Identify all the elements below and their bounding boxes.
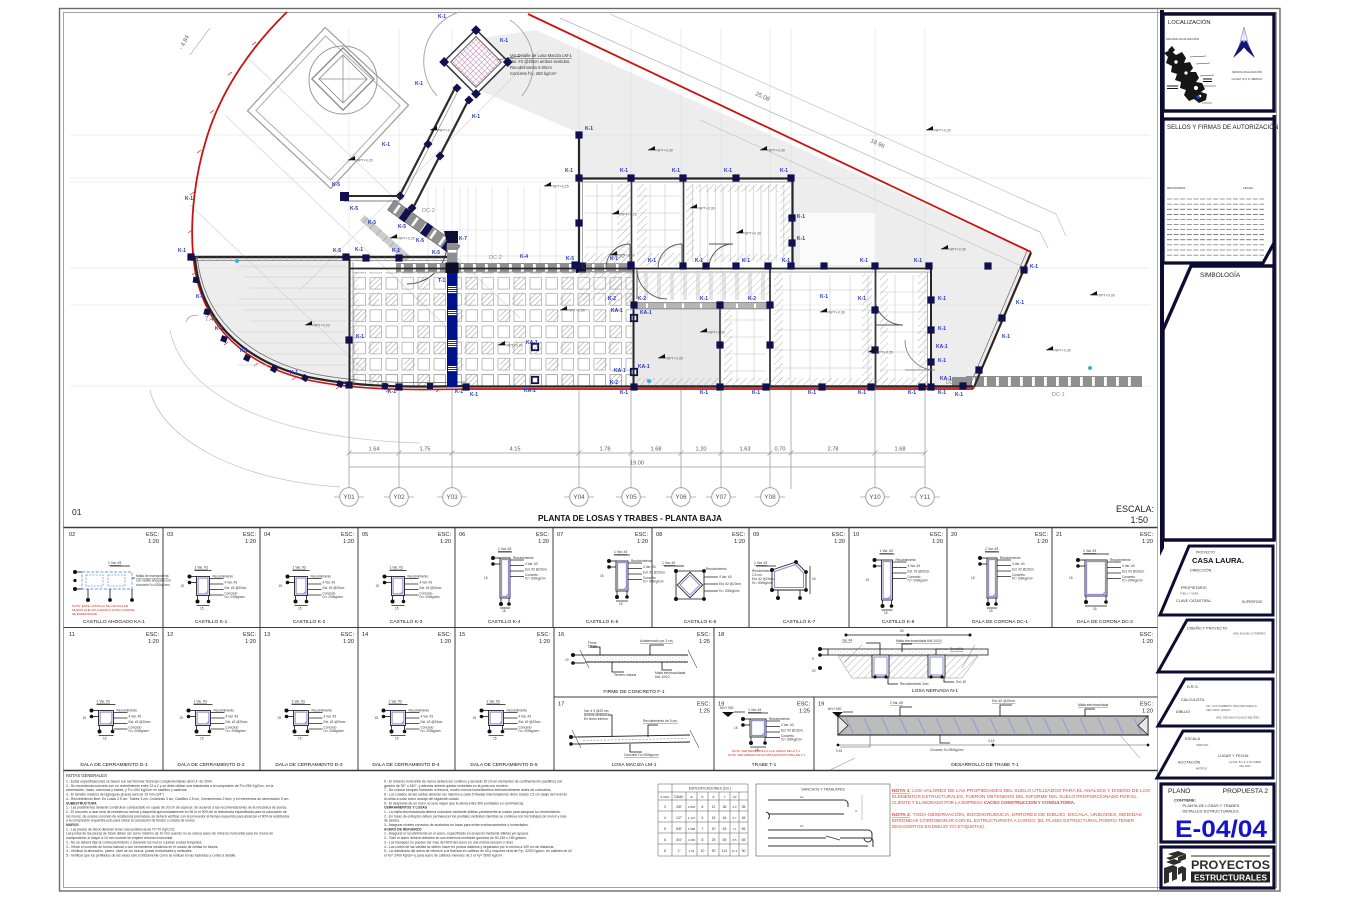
svg-text:Recubrimiento: Recubrimiento xyxy=(507,709,528,713)
svg-text:ARQ. GEOVANA VELASCO BELTRÁN: ARQ. GEOVANA VELASCO BELTRÁN xyxy=(1216,717,1260,720)
svg-text:15: 15 xyxy=(200,607,204,611)
svg-text:Est. #2 @20cm.: Est. #2 @20cm. xyxy=(1122,570,1145,574)
svg-text:CASTILLO K-6: CASTILLO K-6 xyxy=(684,619,717,625)
svg-text:NPT+0.30: NPT+0.30 xyxy=(619,254,635,258)
svg-text:1:20: 1:20 xyxy=(1142,539,1153,545)
svg-text:1 Var. #3: 1 Var. #3 xyxy=(498,547,511,551)
svg-text:09: 09 xyxy=(753,532,759,538)
svg-text:K-1: K-1 xyxy=(955,392,963,398)
svg-text:4 Var. #3: 4 Var. #3 xyxy=(643,565,656,569)
svg-text:K-1: K-1 xyxy=(392,248,400,254)
svg-text:1.- Asegurar el recubrimie: 1.- Asegurar el recubrimiento en el acer… xyxy=(384,832,529,836)
svg-text:10 cm.: 10 cm. xyxy=(588,645,598,649)
svg-text:· PLANTA DE LOSAS Y TRABES.: · PLANTA DE LOSAS Y TRABES. xyxy=(1180,803,1240,808)
svg-text:NPT+0.30: NPT+0.30 xyxy=(709,331,725,335)
svg-text:K-1: K-1 xyxy=(388,389,396,395)
svg-text:Y06: Y06 xyxy=(675,494,687,501)
svg-text:K-1: K-1 xyxy=(938,390,946,396)
svg-text:1.- Estas especificaciones se: 1.- Estas especificaciones se basan con … xyxy=(66,780,213,784)
svg-text:K-2: K-2 xyxy=(638,296,646,302)
svg-text:7.41: 7.41 xyxy=(205,317,217,323)
svg-text:K-1: K-1 xyxy=(797,214,805,220)
svg-text:K-1: K-1 xyxy=(290,370,298,376)
svg-text:THELY Y SURA.: THELY Y SURA. xyxy=(1180,592,1199,596)
svg-text:f'c= 200kg/cm²: f'c= 200kg/cm² xyxy=(324,729,345,733)
svg-text:NPT+0.25: NPT+0.25 xyxy=(439,129,455,133)
svg-text:NPT+0.25: NPT+0.25 xyxy=(553,185,569,189)
svg-text:4 Var. #3: 4 Var. #3 xyxy=(421,715,434,719)
svg-text:METROS: METROS xyxy=(1196,767,1207,771)
svg-text:K-1: K-1 xyxy=(620,168,628,174)
svg-text:15: 15 xyxy=(298,607,302,611)
svg-text:DALA DE CERRAMIENTO D-2: DALA DE CERRAMIENTO D-2 xyxy=(177,762,245,768)
svg-text:GANCHOS Y TRASLAPES: GANCHOS Y TRASLAPES xyxy=(801,788,845,792)
svg-text:a la compresión requerida esto: a la compresión requerida esto para inic… xyxy=(66,819,196,823)
svg-text:DISEÑO Y PROYECTO: DISEÑO Y PROYECTO xyxy=(1187,626,1227,631)
svg-text:4 Var. #3: 4 Var. #3 xyxy=(781,723,794,727)
svg-text:SUPERFICIE: SUPERFICIE xyxy=(1242,600,1263,604)
svg-text:DALA DE CERRAMIENTO D-3: DALA DE CERRAMIENTO D-3 xyxy=(275,762,343,768)
svg-text:4: 4 xyxy=(664,816,666,820)
svg-text:15: 15 xyxy=(376,584,380,588)
svg-text:13: 13 xyxy=(264,632,270,638)
svg-text:Est. #2: Est. #2 xyxy=(956,680,966,684)
svg-text:Y07: Y07 xyxy=(715,494,727,501)
svg-text:ESC:: ESC: xyxy=(697,632,711,638)
svg-text:K-1: K-1 xyxy=(742,258,750,264)
svg-text:Var. #4: Var. #4 xyxy=(842,639,852,643)
svg-text:K-5: K-5 xyxy=(398,224,406,230)
svg-text:ESC:: ESC: xyxy=(536,532,550,538)
svg-text:12: 12 xyxy=(712,805,716,809)
svg-text:Est. #2 @20cm.: Est. #2 @20cm. xyxy=(226,720,249,724)
svg-text:DIRECCIÓN: DIRECCIÓN xyxy=(1190,568,1212,573)
svg-text:Recubrimiento: Recubrimiento xyxy=(117,709,138,713)
svg-text:02: 02 xyxy=(69,532,75,538)
svg-text:PLANTA DE LOSAS Y TRABES - PL: PLANTA DE LOSAS Y TRABES - PLANTA BAJA xyxy=(538,514,722,523)
svg-text:K-5: K-5 xyxy=(368,220,376,226)
svg-text:46: 46 xyxy=(723,816,727,820)
svg-text:DALA DE CERRAMIENTO D-4: DALA DE CERRAMIENTO D-4 xyxy=(372,762,440,768)
svg-text:21: 21 xyxy=(1056,532,1062,538)
svg-text:NPT+0.30: NPT+0.30 xyxy=(745,232,761,236)
svg-text:01: 01 xyxy=(72,507,82,517)
svg-text:1 Var. #3: 1 Var. #3 xyxy=(97,700,110,704)
svg-text:DC-1: DC-1 xyxy=(1052,392,1065,398)
svg-text:Est. #2 @15cm.: Est. #2 @15cm. xyxy=(992,699,1016,703)
svg-text:4 Var. #3: 4 Var. #3 xyxy=(1122,564,1135,568)
svg-text:CASTILLO K-2: CASTILLO K-2 xyxy=(293,619,326,625)
svg-text:K-2: K-2 xyxy=(608,296,616,302)
svg-text:Concreto f'c=250kg/cm²: Concreto f'c=250kg/cm² xyxy=(930,748,964,752)
svg-text:4.15: 4.15 xyxy=(988,739,995,743)
svg-text:DALA DE CERRAMIENTO D-1: DALA DE CERRAMIENTO D-1 xyxy=(80,762,148,768)
svg-text:K-1: K-1 xyxy=(752,390,760,396)
svg-text:d: d xyxy=(713,795,715,799)
svg-text:11: 11 xyxy=(69,632,75,638)
svg-text:17: 17 xyxy=(558,702,564,708)
svg-text:K-5: K-5 xyxy=(416,238,424,244)
svg-text:65: 65 xyxy=(742,838,746,842)
svg-text:SELLOS Y FIRMAS DE AUTORIZACIÓ: SELLOS Y FIRMAS DE AUTORIZACIÓN xyxy=(1167,124,1278,131)
svg-text:5.7: 5.7 xyxy=(732,816,736,820)
svg-text:4 Var. #3: 4 Var. #3 xyxy=(323,581,336,585)
svg-text:1:20: 1:20 xyxy=(932,539,943,545)
svg-text:ESPECIFICACIONES (Cm.): ESPECIFICACIONES (Cm.) xyxy=(689,787,732,791)
svg-text:20: 20 xyxy=(712,827,716,831)
svg-text:ESC:: ESC: xyxy=(1035,532,1049,538)
svg-text:1 Var. #3: 1 Var. #3 xyxy=(194,700,207,704)
svg-text:15: 15 xyxy=(712,816,716,820)
svg-text:15: 15 xyxy=(278,716,282,720)
svg-text:19.00: 19.00 xyxy=(630,461,644,467)
svg-text:Est. #2 @20cm.: Est. #2 @20cm. xyxy=(324,720,347,724)
svg-text:K-7: K-7 xyxy=(459,236,467,242)
svg-text:K-1: K-1 xyxy=(808,390,816,396)
svg-text:DC-2: DC-2 xyxy=(489,255,502,261)
svg-text:19: 19 xyxy=(818,702,824,708)
svg-text:K-1: K-1 xyxy=(240,348,248,354)
svg-text:10: 10 xyxy=(701,849,705,853)
svg-text:K-1: K-1 xyxy=(620,390,628,396)
svg-text:1.68: 1.68 xyxy=(651,447,662,453)
svg-text:14: 14 xyxy=(362,632,368,638)
svg-text:f'c= 200kg/cm²: f'c= 200kg/cm² xyxy=(129,729,150,733)
svg-text:NIV+.500: NIV+.500 xyxy=(720,706,734,710)
svg-text:90: 90 xyxy=(742,849,746,853)
svg-text:15: 15 xyxy=(884,611,888,615)
svg-text:NPT+0.30: NPT+0.30 xyxy=(657,149,673,153)
svg-text:1.68: 1.68 xyxy=(895,447,906,453)
svg-text:K-1: K-1 xyxy=(858,390,866,396)
svg-text:1:20: 1:20 xyxy=(834,539,845,545)
svg-text:los muros; de usarse concreto: los muros; de usarse concreto de resiste… xyxy=(66,814,289,818)
svg-text:1:20: 1:20 xyxy=(637,539,648,545)
svg-text:10: 10 xyxy=(565,658,569,662)
svg-text:5.- Verificar que los perfilad: 5.- Verificar que los perfilados de las … xyxy=(66,854,236,858)
svg-text:0.953: 0.953 xyxy=(688,805,696,809)
svg-text:15: 15 xyxy=(375,716,379,720)
svg-text:K-1: K-1 xyxy=(356,334,364,340)
svg-text:ESC:: ESC: xyxy=(146,532,160,538)
svg-text:f'c= 200kg/cm²: f'c= 200kg/cm² xyxy=(1122,579,1143,583)
svg-text:55: 55 xyxy=(742,827,746,831)
svg-text:KA-1: KA-1 xyxy=(611,308,623,314)
svg-text:15: 15 xyxy=(395,737,399,741)
svg-text:NPT+0.30: NPT+0.30 xyxy=(699,207,715,211)
svg-text:4 Var. #3: 4 Var. #3 xyxy=(420,581,433,585)
svg-text:Recubrimiento: Recubrimiento xyxy=(1000,556,1021,560)
svg-text:ERRÓNEAS CORROBORAR CON EL EST: ERRÓNEAS CORROBORAR CON EL ESTRUCTURISTA… xyxy=(892,818,1134,823)
svg-text:NPT+0.30: NPT+0.30 xyxy=(507,344,523,348)
svg-text:1.63: 1.63 xyxy=(740,447,751,453)
svg-text:ESTRUCTURALES: ESTRUCTURALES xyxy=(1194,874,1268,883)
svg-text:15: 15 xyxy=(473,716,477,720)
svg-text:1:50: 1:50 xyxy=(1130,515,1148,525)
svg-text:Recubrimiento: Recubrimiento xyxy=(513,556,534,560)
svg-text:2.54: 2.54 xyxy=(689,849,695,853)
svg-text:Est. #2 @20cm.: Est. #2 @20cm. xyxy=(519,720,542,724)
svg-text:1:20: 1:20 xyxy=(538,539,549,545)
svg-text:DALA DE CORONA DC-2: DALA DE CORONA DC-2 xyxy=(1077,619,1133,625)
svg-text:LA PAZ, B.C.S. A OCTUBRE: LA PAZ, B.C.S. A OCTUBRE xyxy=(1229,761,1261,764)
svg-text:1.64: 1.64 xyxy=(369,447,380,453)
svg-text:f'c= 200kg/cm²: f'c= 200kg/cm² xyxy=(420,595,441,599)
svg-text:12: 12 xyxy=(167,632,173,638)
svg-text:K-1: K-1 xyxy=(938,296,946,302)
svg-text:f'c= 200kg/cm²: f'c= 200kg/cm² xyxy=(908,579,929,583)
svg-text:Recubrimiento: Recubrimiento xyxy=(896,558,917,562)
svg-text:K-1: K-1 xyxy=(438,14,446,20)
svg-text:f'c= 200kg/cm²: f'c= 200kg/cm² xyxy=(226,729,247,733)
svg-text:Est. #2 @20cm.: Est. #2 @20cm. xyxy=(719,582,742,586)
svg-text:15: 15 xyxy=(279,584,283,588)
svg-text:15: 15 xyxy=(459,632,465,638)
svg-text:T-1: T-1 xyxy=(438,278,445,284)
svg-text:CASTILLO K-7: CASTILLO K-7 xyxy=(783,619,816,625)
svg-text:3/4": 3/4" xyxy=(676,838,683,842)
svg-text:K-1: K-1 xyxy=(700,390,708,396)
svg-text:DESARROLLO DE TRABE T-1: DESARROLLO DE TRABE T-1 xyxy=(951,762,1019,768)
svg-text:45: 45 xyxy=(742,816,746,820)
svg-text:DEL 2023: DEL 2023 xyxy=(1239,765,1251,768)
svg-text:1 Var. #3: 1 Var. #3 xyxy=(880,549,893,553)
svg-text:# VAR.: # VAR. xyxy=(660,795,669,799)
svg-text:Ld: Ld xyxy=(800,824,804,828)
svg-text:Var. #3 @20cm ambos sentidos.: Var. #3 @20cm ambos sentidos. xyxy=(510,59,570,64)
svg-text:ESC:: ESC: xyxy=(146,632,160,638)
svg-text:1.588: 1.588 xyxy=(688,827,696,831)
svg-text:ESC:: ESC: xyxy=(697,702,711,708)
svg-text:Recubrimiento: Recubrimiento xyxy=(214,709,235,713)
svg-text:f'c= 200kg/cm²: f'c= 200kg/cm² xyxy=(225,595,246,599)
svg-text:1.78: 1.78 xyxy=(600,447,611,453)
svg-text:35: 35 xyxy=(742,805,746,809)
svg-text:K-1: K-1 xyxy=(565,168,573,174)
svg-text:3.- Los traslapes no puede: 3.- Los traslapes no pueden ser mas del … xyxy=(384,840,514,844)
svg-text:Y04: Y04 xyxy=(573,494,585,501)
svg-text:2.78: 2.78 xyxy=(828,447,839,453)
svg-text:LOSA MACIZA LM-1: LOSA MACIZA LM-1 xyxy=(612,762,657,768)
svg-text:1.127: 1.127 xyxy=(688,816,696,820)
svg-text:K-5: K-5 xyxy=(566,256,574,262)
svg-text:CALCULISTA: CALCULISTA xyxy=(1181,698,1205,702)
svg-text:ING. LUIS HUMBERTO SÁNCHEZ MUR: ING. LUIS HUMBERTO SÁNCHEZ MURILLO xyxy=(1206,705,1257,708)
svg-text:4.- Verificar la alineación, p: 4.- Verificar la alineación, plomo, nive… xyxy=(66,849,192,853)
svg-text:16: 16 xyxy=(558,632,564,638)
svg-text:5: 5 xyxy=(664,827,666,831)
svg-text:4 Var. #3: 4 Var. #3 xyxy=(525,562,538,566)
svg-text:15: 15 xyxy=(989,609,993,613)
svg-text:PROYECTO: PROYECTO xyxy=(1196,551,1215,555)
svg-text:1:20: 1:20 xyxy=(1037,539,1048,545)
svg-text:CASTILLO K-4: CASTILLO K-4 xyxy=(488,619,521,625)
svg-text:1:20: 1:20 xyxy=(245,639,256,645)
svg-text:1:20: 1:20 xyxy=(1142,709,1153,715)
svg-text:2 Var. #5: 2 Var. #5 xyxy=(890,701,903,705)
svg-text:DESACIERTOS EN DIBUJO Y/O ETIQ: DESACIERTOS EN DIBUJO Y/O ETIQUETAS). xyxy=(892,824,985,829)
svg-text:Est. #2 @20cm.: Est. #2 @20cm. xyxy=(781,729,804,733)
svg-text:10: 10 xyxy=(853,532,859,538)
svg-text:1/2": 1/2" xyxy=(676,816,683,820)
svg-text:Acabermado por 3 cm.: Acabermado por 3 cm. xyxy=(640,639,673,643)
svg-text:Recubrimiento de 5 cm.: Recubrimiento de 5 cm. xyxy=(643,719,678,723)
svg-text:06: 06 xyxy=(459,532,465,538)
svg-text:REVISIONES: REVISIONES xyxy=(1167,186,1185,190)
svg-text:4 Var. #3: 4 Var. #3 xyxy=(519,715,532,719)
svg-text:2.- No se deberá fijar la cont: 2.- No se deberá fijar la contra perfora… xyxy=(66,840,202,844)
svg-text:K-1: K-1 xyxy=(500,38,508,44)
svg-text:4 Var. #3: 4 Var. #3 xyxy=(324,715,337,719)
svg-text:Bovedilla: Bovedilla xyxy=(950,647,964,651)
svg-text:NPT+0.20: NPT+0.20 xyxy=(935,129,951,133)
svg-text:Recubrimiento: Recubrimiento xyxy=(631,559,652,563)
svg-text:Recubrimiento: Recubrimiento xyxy=(409,709,430,713)
svg-text:SE ESPECIFIQUE: SE ESPECIFIQUE xyxy=(72,612,97,616)
svg-text:K-1: K-1 xyxy=(780,168,788,174)
svg-text:6: 6 xyxy=(702,816,704,820)
svg-text:MACROLOCALIZACIÓN: MACROLOCALIZACIÓN xyxy=(1166,36,1199,41)
svg-text:NPT+0.00: NPT+0.00 xyxy=(1099,294,1115,298)
svg-text:Recubrimiento: Recubrimiento xyxy=(1110,558,1131,562)
svg-text:Y11: Y11 xyxy=(920,494,931,501)
svg-text:3.- Asegurar niveles corre: 3.- Asegurar niveles correctos de acabad… xyxy=(384,823,529,827)
svg-text:concreto f'c=200kg/cm²: concreto f'c=200kg/cm² xyxy=(136,583,171,587)
svg-text:04: 04 xyxy=(264,532,270,538)
svg-text:1.20: 1.20 xyxy=(696,447,707,453)
svg-text:4 Var. #3: 4 Var. #3 xyxy=(719,575,732,579)
svg-text:4 Var. #3: 4 Var. #3 xyxy=(129,715,142,719)
svg-text:NPT+0.30: NPT+0.30 xyxy=(1055,349,1071,353)
svg-text:K-1: K-1 xyxy=(938,358,946,364)
svg-text:ESC:: ESC: xyxy=(243,532,257,538)
svg-text:ESC:: ESC: xyxy=(797,702,811,708)
svg-text:Ld: Ld xyxy=(733,795,737,799)
svg-text:1:20: 1:20 xyxy=(148,539,159,545)
svg-text:CONTIENE:: CONTIENE: xyxy=(1174,798,1196,803)
svg-text:K-1: K-1 xyxy=(938,326,946,332)
svg-text:PLANO: PLANO xyxy=(1168,788,1190,795)
svg-text:Concreto f'c=250kg/cm²: Concreto f'c=250kg/cm² xyxy=(624,753,660,757)
svg-text:07: 07 xyxy=(557,532,563,538)
svg-text:ELEMENTOS ESTRUCTURALES, FUERO: ELEMENTOS ESTRUCTURALES, FUERON OBTENIDO… xyxy=(892,794,1138,799)
svg-text:1:20: 1:20 xyxy=(734,539,745,545)
svg-text:63: 63 xyxy=(723,827,727,831)
svg-text:K-1: K-1 xyxy=(820,294,828,300)
svg-text:PROPIETARIO: PROPIETARIO xyxy=(1181,586,1207,590)
svg-text:4.3: 4.3 xyxy=(732,805,736,809)
svg-text:E-04/04: E-04/04 xyxy=(1175,816,1268,843)
svg-text:1:25: 1:25 xyxy=(699,639,710,645)
svg-text:K-1: K-1 xyxy=(1016,300,1024,306)
svg-text:NPT+0.20: NPT+0.20 xyxy=(357,159,373,163)
svg-text:K-1: K-1 xyxy=(185,196,193,202)
svg-text:Est. #2 @20cm.: Est. #2 @20cm. xyxy=(1012,568,1035,572)
svg-text:CASTILLO K-8: CASTILLO K-8 xyxy=(882,619,915,625)
svg-text:CASTILLO K-3: CASTILLO K-3 xyxy=(390,619,423,625)
svg-text:NPT+0.30: NPT+0.30 xyxy=(569,309,585,313)
svg-text:K-4: K-4 xyxy=(520,254,528,260)
svg-text:NPT+0.25: NPT+0.25 xyxy=(399,237,415,241)
svg-text:15: 15 xyxy=(83,716,87,720)
svg-text:1.905: 1.905 xyxy=(688,838,696,842)
svg-text:1 Var. #3: 1 Var. #3 xyxy=(487,700,500,704)
svg-text:11.3: 11.3 xyxy=(732,849,738,853)
svg-text:K-5: K-5 xyxy=(333,248,341,254)
svg-text:LUGAR Y FECHA: LUGAR Y FECHA xyxy=(1218,754,1249,758)
svg-text:K-1: K-1 xyxy=(797,236,805,242)
svg-text:Malla electrosoldada: Malla electrosoldada xyxy=(1078,703,1108,707)
svg-text:ESC:: ESC: xyxy=(537,632,551,638)
svg-text:1.75: 1.75 xyxy=(420,447,431,453)
svg-text:- 4.84: - 4.84 xyxy=(178,34,191,51)
svg-text:1:20: 1:20 xyxy=(1142,639,1153,645)
svg-text:LA PAZ, B.C.S. MÉXICO: LA PAZ, B.C.S. MÉXICO xyxy=(1232,76,1264,81)
svg-text:f'c= 200kg/cm²: f'c= 200kg/cm² xyxy=(643,580,664,584)
svg-text:1:25: 1:25 xyxy=(799,709,810,715)
svg-text:KA-1: KA-1 xyxy=(640,310,652,316)
svg-text:KA-1: KA-1 xyxy=(614,368,626,374)
svg-text:Recubrimiento: Recubrimiento xyxy=(213,575,234,579)
svg-text:Est. #2 @20cm.: Est. #2 @20cm. xyxy=(323,586,346,590)
svg-text:15: 15 xyxy=(484,576,488,580)
svg-text:15: 15 xyxy=(971,576,975,580)
svg-text:K-1: K-1 xyxy=(1030,264,1038,270)
svg-text:7.1: 7.1 xyxy=(732,827,736,831)
svg-text:20: 20 xyxy=(951,532,957,538)
svg-text:1:20: 1:20 xyxy=(343,539,354,545)
svg-text:MUROS: MUROS xyxy=(66,823,79,827)
svg-text:Las juntas de las piezas de bl: Las juntas de las piezas de block deben … xyxy=(66,832,273,836)
svg-text:TRABE T-1: TRABE T-1 xyxy=(752,762,777,768)
svg-text:Ver Detalle de Losa Maciza LM-: Ver Detalle de Losa Maciza LM-1 xyxy=(510,53,572,58)
svg-text:K-2: K-2 xyxy=(610,380,618,386)
svg-text:8.5: 8.5 xyxy=(732,838,736,842)
svg-text:4 Var. #3: 4 Var. #3 xyxy=(1012,562,1025,566)
svg-text:K-5: K-5 xyxy=(350,206,358,212)
svg-text:SIMBOLOGÍA: SIMBOLOGÍA xyxy=(1200,270,1241,279)
svg-text:Recubrimiento: Recubrimiento xyxy=(706,567,727,571)
svg-text:15: 15 xyxy=(395,607,399,611)
svg-text:1:20: 1:20 xyxy=(245,539,256,545)
svg-text:PROPUESTA 2: PROPUESTA 2 xyxy=(1223,788,1269,795)
svg-text:K-1: K-1 xyxy=(700,296,708,302)
svg-text:25.08: 25.08 xyxy=(754,91,771,103)
svg-text:DALA DE CERRAMIENTO D-5: DALA DE CERRAMIENTO D-5 xyxy=(470,762,538,768)
svg-text:K-1: K-1 xyxy=(196,294,204,300)
svg-text:18: 18 xyxy=(718,632,724,638)
svg-text:a: a xyxy=(691,795,693,799)
svg-text:3: 3 xyxy=(664,805,666,809)
svg-text:15: 15 xyxy=(493,737,497,741)
svg-text:Ld: Ld xyxy=(800,795,804,799)
svg-text:4 Var. #3: 4 Var. #3 xyxy=(908,564,921,568)
svg-text:· DETALLES ESTRUCTURALES.: · DETALLES ESTRUCTURALES. xyxy=(1180,809,1240,814)
svg-text:1 Var. #3: 1 Var. #3 xyxy=(1083,549,1096,553)
svg-text:6.- El refuerzo horizontal: 6.- El refuerzo horizontal de muros debe… xyxy=(384,780,562,784)
svg-text:1.- Las plataformas deberán co: 1.- Las plataformas deberán construirse … xyxy=(66,806,287,810)
svg-text:Recubrimiento: Recubrimiento xyxy=(311,575,332,579)
svg-text:1 Var. #3: 1 Var. #3 xyxy=(293,566,306,570)
svg-text:K-1: K-1 xyxy=(470,392,478,398)
svg-text:5.- La resistencia del ace: 5.- La resistencia del acero de refuerzo… xyxy=(384,849,572,853)
svg-text:1 Var. #3: 1 Var. #3 xyxy=(614,550,627,554)
svg-text:1 Var. #3: 1 Var. #3 xyxy=(292,700,305,704)
svg-text:Concreto f'c= 250 kg/cm²: Concreto f'c= 250 kg/cm² xyxy=(510,71,557,76)
svg-text:f'c= 200kg/cm²: f'c= 200kg/cm² xyxy=(421,729,442,733)
svg-text:7: 7 xyxy=(702,827,704,831)
svg-text:DC-1: DC-1 xyxy=(946,380,959,386)
